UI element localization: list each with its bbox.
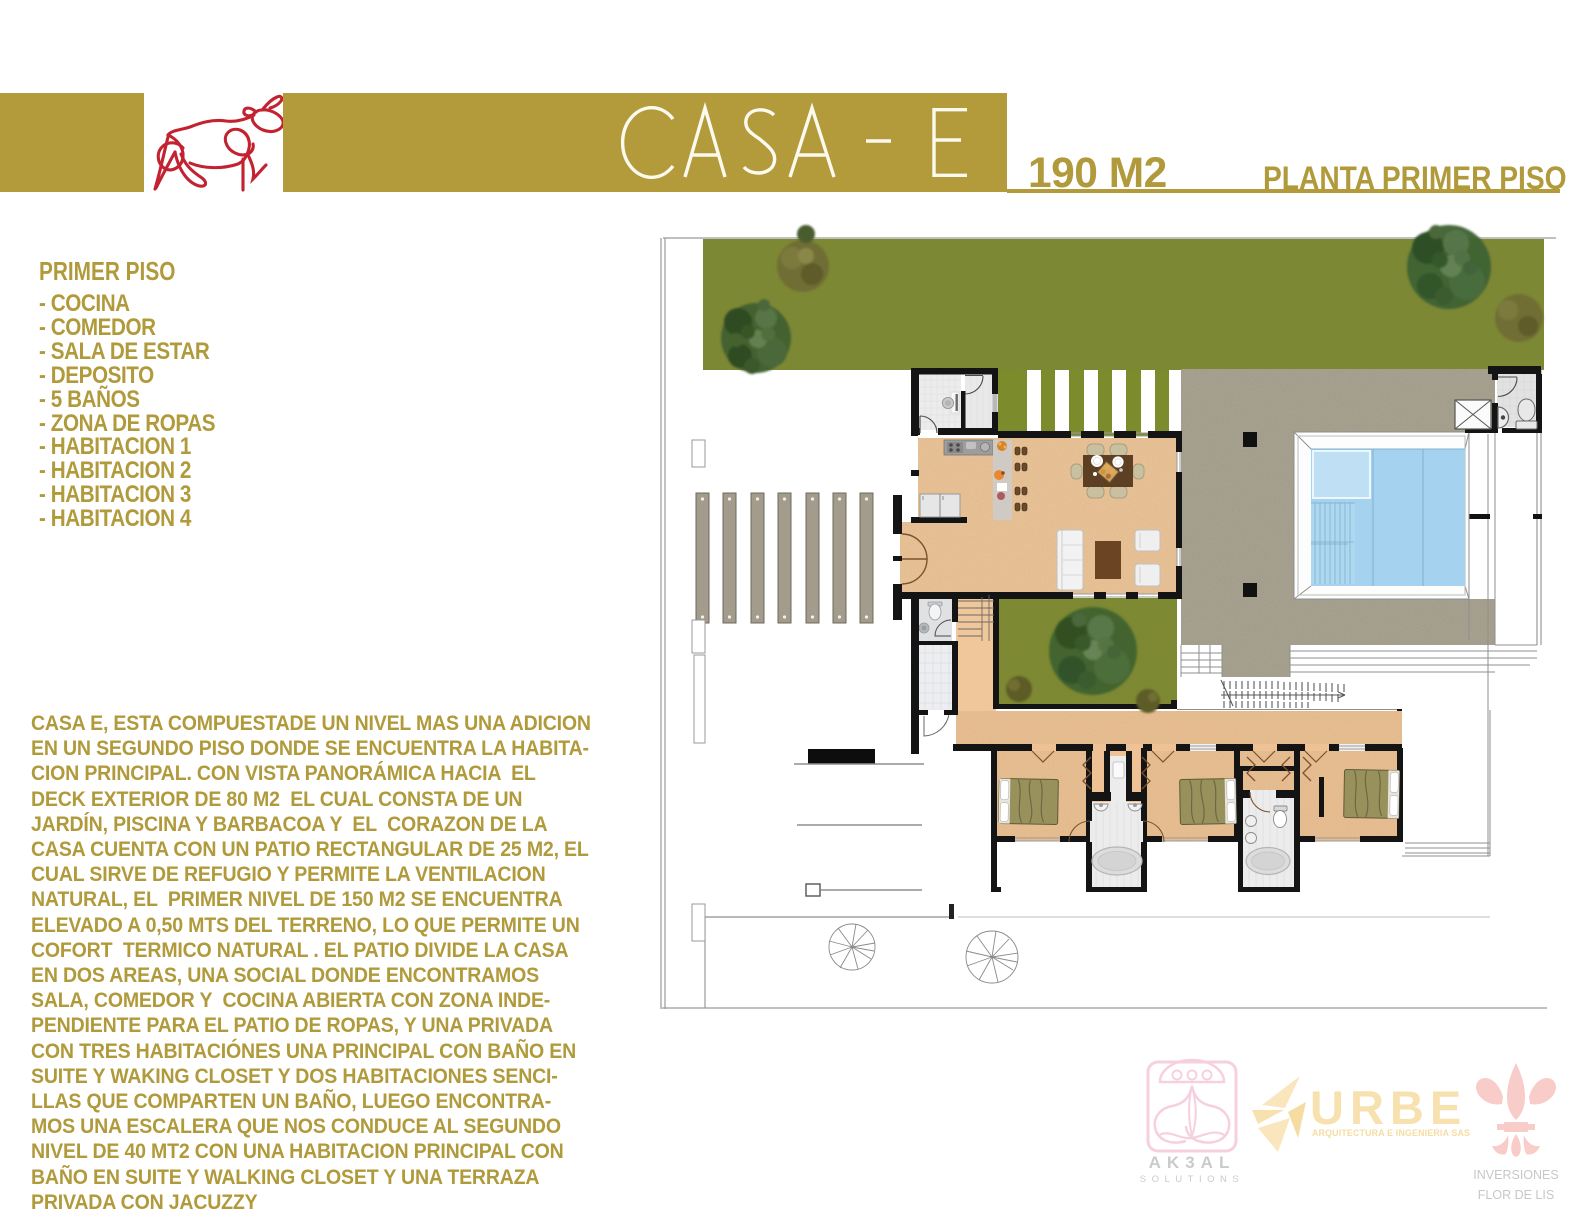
- svg-text:INVERSIONES: INVERSIONES: [1473, 1168, 1558, 1182]
- svg-text:URBE: URBE: [1310, 1081, 1467, 1134]
- svg-text:FLOR DE LIS: FLOR DE LIS: [1478, 1188, 1554, 1202]
- svg-text:SOLUTIONS: SOLUTIONS: [1140, 1174, 1244, 1185]
- svg-text:AK3AL: AK3AL: [1149, 1153, 1236, 1172]
- svg-text:ARQUITECTURA E INGENIERIA SAS: ARQUITECTURA E INGENIERIA SAS: [1312, 1128, 1470, 1138]
